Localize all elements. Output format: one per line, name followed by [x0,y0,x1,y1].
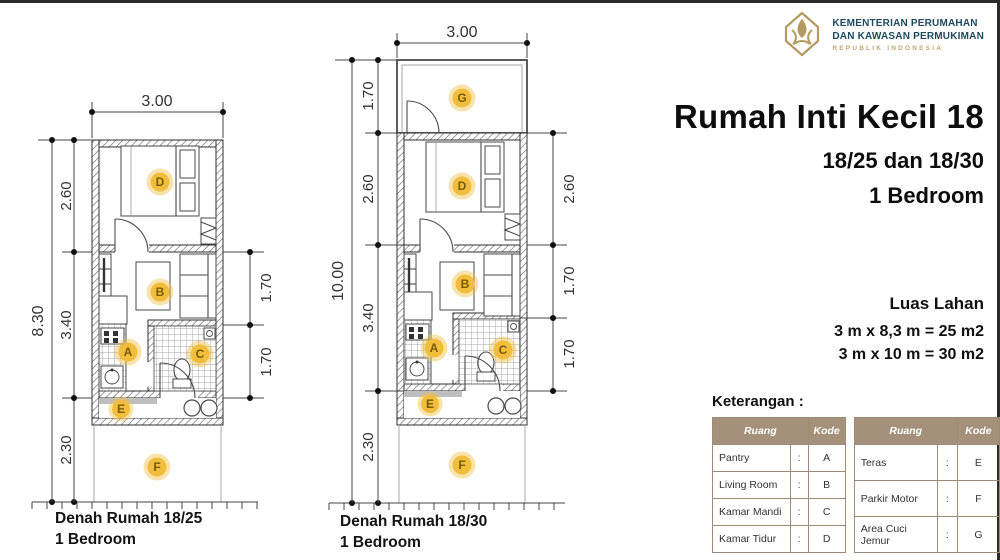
legend1-col-ruang: Ruang [713,418,809,445]
legend-heading: Keterangan : [712,393,1000,410]
legend-separator: : [937,517,957,553]
land-area-line1: 3 m x 8,3 m = 25 m2 [834,320,984,343]
dimension-top: 3.00 [394,24,530,58]
plan-caption-line2: 1 Bedroom [340,534,421,551]
table-row: Kamar Tidur : D [713,526,846,553]
legend-room-code: F [957,481,999,517]
legend-room-code: E [957,445,999,481]
sofa [484,254,520,316]
dimension-left: 8.30 2.60 3.40 2.30 [30,137,92,502]
legend-separator: : [790,499,808,526]
dimension-right: 1.70 1.70 [223,249,275,401]
legend-room-code: A [808,445,845,472]
table-row: Living Room : B [713,472,846,499]
wardrobe [201,218,216,244]
floor-plan-18-25: 3.00 [18,82,308,560]
svg-text:C: C [196,347,205,361]
svg-text:F: F [153,460,160,474]
dim-label: 1.70 [360,81,377,110]
room-marker-g: G [449,85,476,112]
legend-room-code: B [808,472,845,499]
legend-room-code: D [808,526,845,553]
legend1-col-kode: Kode [808,418,845,445]
legend-room-name: Area Cuci Jemur [854,517,937,553]
room-marker-f: F [144,454,171,481]
floor-plan-18-30: 3.00 [315,14,605,560]
svg-text:A: A [430,341,439,355]
washbasin [508,321,519,332]
legend-room-name: Living Room [713,472,791,499]
dim-label: 3.40 [360,303,377,332]
table-row: Area Cuci Jemur : G [854,517,999,553]
ministry-logo-text: KEMENTERIAN PERUMAHAN DAN KAWASAN PERMUK… [832,17,984,52]
svg-text:E: E [426,397,434,411]
dim-label: 2.60 [561,174,578,203]
ministry-name-line3: REPUBLIK INDONESIA [832,45,984,52]
dim-label: 2.30 [360,432,377,461]
dimension-top: 3.00 [89,93,226,138]
svg-text:F: F [458,458,465,472]
room-marker-a: A [115,339,142,366]
legend-table-2: Ruang Kode Teras : E Parkir Motor : F Ar… [854,417,1000,553]
room-marker-e: E [109,397,134,422]
dim-label: 2.60 [360,174,377,203]
legend2-col-ruang: Ruang [854,418,957,445]
dim-total-label: 8.30 [30,305,47,336]
table-row: Teras : E [854,445,999,481]
dimension-right: 2.60 1.70 1.70 [520,130,578,394]
dim-total-label: 10.00 [330,261,347,301]
land-area-line2: 3 m x 10 m = 30 m2 [834,343,984,366]
legend-separator: : [790,445,808,472]
dim-label: 3.40 [58,310,75,339]
sofa [180,254,216,318]
land-area-block: Luas Lahan 3 m x 8,3 m = 25 m2 3 m x 10 … [834,294,984,366]
ground-line [32,499,258,509]
legend-room-name: Kamar Tidur [713,526,791,553]
ministry-logo: KEMENTERIAN PERUMAHAN DAN KAWASAN PERMUK… [779,10,984,58]
svg-text:G: G [457,91,466,105]
page-title: Rumah Inti Kecil 18 [674,98,984,136]
svg-text:D: D [156,175,165,189]
page-top-border [0,0,1000,3]
dim-width-label: 3.00 [446,24,477,41]
legend-room-name: Kamar Mandi [713,499,791,526]
pantry-corner-counter [99,296,127,324]
svg-text:E: E [117,402,125,416]
svg-text:D: D [458,179,467,193]
svg-text:B: B [461,277,470,291]
plan-caption-line1: Denah Rumah 18/30 [340,513,487,530]
plan-caption-line2: 1 Bedroom [55,531,136,548]
washbasin [204,328,215,339]
table-row: Pantry : A [713,445,846,472]
plan-caption-line1: Denah Rumah 18/25 [55,510,203,527]
svg-text:A: A [124,345,133,359]
legend-room-code: C [808,499,845,526]
ministry-name-line2: DAN KAWASAN PERMUKIMAN [832,30,984,43]
legend-separator: : [937,481,957,517]
room-marker-c: C [187,341,214,368]
dimension-left: 10.00 1.70 2.60 3.40 2.30 [330,57,404,503]
dim-label: 1.70 [258,273,275,302]
legend-block: Keterangan : Ruang Kode Pantry : A Livin… [712,393,1000,553]
ground-line [329,500,565,510]
ministry-name-line1: KEMENTERIAN PERUMAHAN [832,17,984,30]
ministry-emblem-icon [779,10,825,58]
slide-page: KEMENTERIAN PERUMAHAN DAN KAWASAN PERMUK… [0,0,1000,560]
legend-room-name: Parkir Motor [854,481,937,517]
legend-room-name: Teras [854,445,937,481]
title-block: Rumah Inti Kecil 18 18/25 dan 18/30 1 Be… [674,98,984,209]
svg-text:C: C [499,343,508,357]
legend-separator: : [937,445,957,481]
table-row: Kamar Mandi : C [713,499,846,526]
legend-separator: : [790,472,808,499]
dim-label: 1.70 [561,339,578,368]
toilet [174,359,190,381]
legend2-col-kode: Kode [957,418,999,445]
room-marker-d: D [449,173,476,200]
land-area-heading: Luas Lahan [834,294,984,314]
page-subtitle-bedroom: 1 Bedroom [674,183,984,209]
dim-label: 2.60 [58,181,75,210]
legend-separator: : [790,526,808,553]
wardrobe [505,214,520,240]
room-marker-b: B [147,279,174,306]
room-marker-b: B [452,271,479,298]
room-marker-a: A [421,335,448,362]
room-marker-e: E [418,392,443,417]
room-marker-d: D [147,169,174,196]
legend-table-1: Ruang Kode Pantry : A Living Room : B Ka… [712,417,846,553]
page-subtitle-types: 18/25 dan 18/30 [674,148,984,174]
room-marker-f: F [449,452,476,479]
dim-label: 1.70 [561,266,578,295]
dim-label: 1.70 [258,347,275,376]
dim-width-label: 3.00 [141,93,172,110]
pantry-corner-counter [404,292,432,320]
table-row: Parkir Motor : F [854,481,999,517]
room-marker-c: C [490,337,517,364]
legend-room-name: Pantry [713,445,791,472]
dim-label: 2.30 [58,435,75,464]
svg-text:B: B [156,285,165,299]
legend-room-code: G [957,517,999,553]
